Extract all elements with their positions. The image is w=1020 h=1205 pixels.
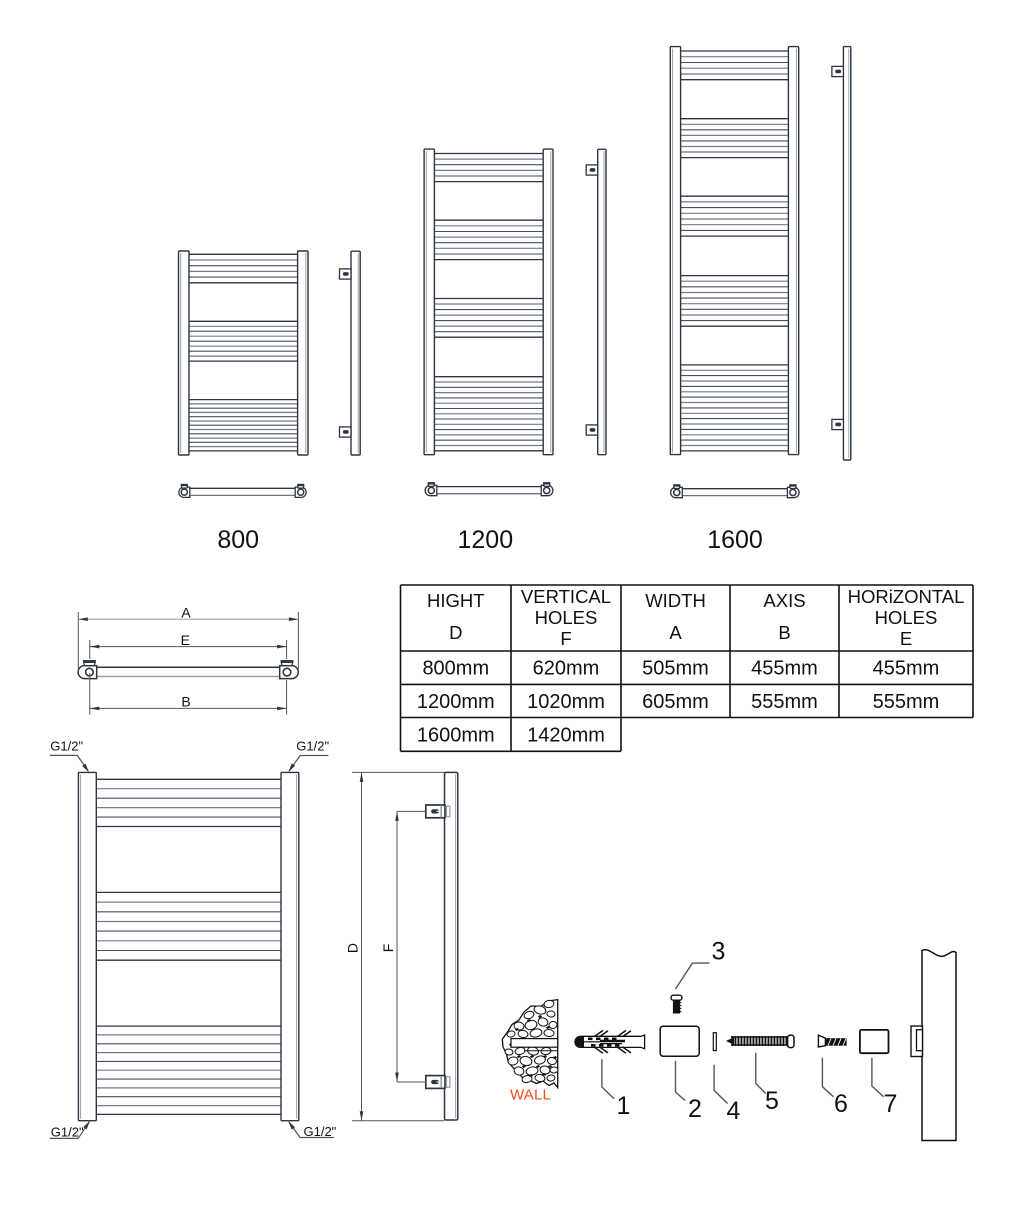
svg-text:B: B	[778, 622, 790, 643]
svg-text:E: E	[900, 628, 912, 649]
svg-text:2: 2	[688, 1095, 702, 1123]
svg-text:HOLES: HOLES	[535, 607, 598, 628]
svg-text:605mm: 605mm	[642, 691, 709, 713]
svg-text:6: 6	[834, 1090, 848, 1118]
svg-text:F: F	[560, 628, 571, 649]
svg-text:1600mm: 1600mm	[417, 724, 495, 746]
svg-text:1600: 1600	[707, 526, 763, 554]
svg-text:VERTICAL: VERTICAL	[521, 586, 611, 607]
svg-text:D: D	[345, 943, 361, 953]
svg-text:1020mm: 1020mm	[527, 691, 605, 713]
svg-text:G1/2": G1/2"	[304, 1124, 337, 1139]
svg-text:A: A	[181, 605, 191, 621]
svg-text:555mm: 555mm	[873, 691, 940, 713]
svg-text:1420mm: 1420mm	[527, 724, 605, 746]
svg-text:F: F	[380, 944, 396, 953]
svg-text:4: 4	[727, 1097, 741, 1125]
svg-text:620mm: 620mm	[533, 658, 600, 680]
svg-text:455mm: 455mm	[751, 658, 818, 680]
svg-text:G1/2": G1/2"	[50, 739, 83, 754]
svg-text:5: 5	[765, 1087, 779, 1115]
svg-text:800: 800	[217, 526, 259, 554]
svg-text:HORiZONTAL: HORiZONTAL	[848, 586, 965, 607]
svg-text:HIGHT: HIGHT	[427, 590, 485, 611]
svg-text:WALL: WALL	[510, 1087, 551, 1104]
svg-text:800mm: 800mm	[422, 658, 489, 680]
svg-text:555mm: 555mm	[751, 691, 818, 713]
svg-text:E: E	[181, 632, 190, 648]
svg-text:AXIS: AXIS	[763, 590, 805, 611]
svg-text:1200mm: 1200mm	[417, 691, 495, 713]
svg-text:1200: 1200	[457, 526, 513, 554]
svg-text:WIDTH: WIDTH	[645, 590, 706, 611]
svg-text:HOLES: HOLES	[875, 607, 938, 628]
svg-text:B: B	[181, 694, 190, 710]
svg-text:7: 7	[884, 1090, 898, 1118]
svg-text:G1/2": G1/2"	[296, 739, 329, 754]
svg-text:D: D	[449, 622, 462, 643]
svg-text:A: A	[669, 622, 682, 643]
svg-text:1: 1	[617, 1092, 631, 1120]
svg-text:455mm: 455mm	[873, 658, 940, 680]
svg-text:3: 3	[712, 938, 726, 966]
svg-text:505mm: 505mm	[642, 658, 709, 680]
